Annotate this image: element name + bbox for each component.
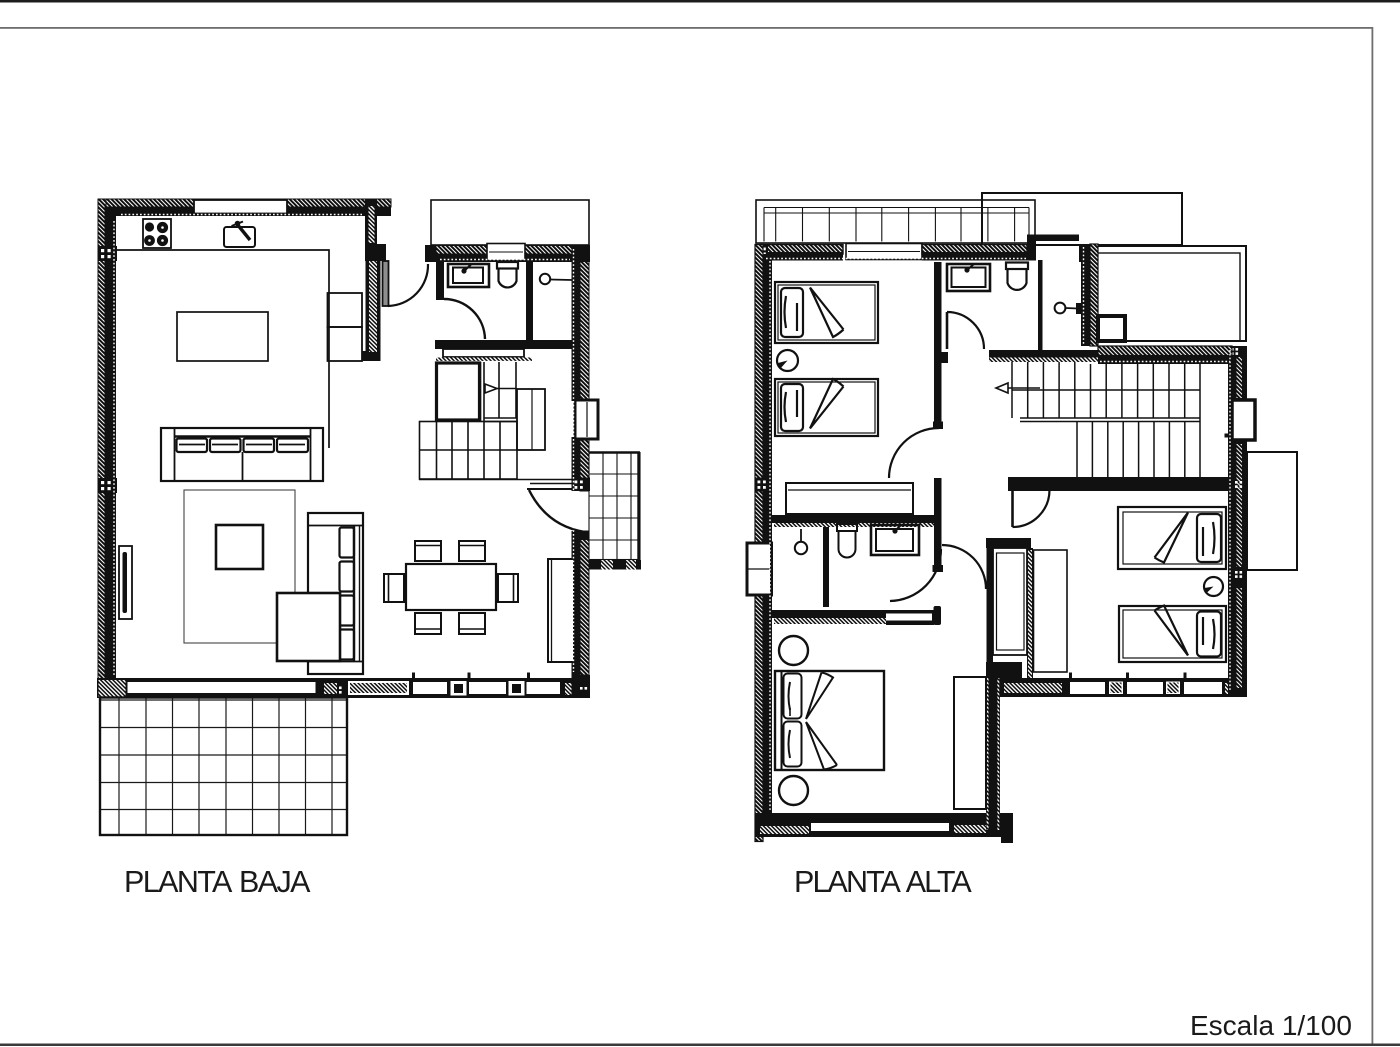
svg-text:PLANTA BAJA: PLANTA BAJA bbox=[124, 865, 311, 899]
svg-text:Escala 1/100: Escala 1/100 bbox=[1190, 1010, 1352, 1041]
svg-text:PLANTA ALTA: PLANTA ALTA bbox=[794, 865, 972, 899]
